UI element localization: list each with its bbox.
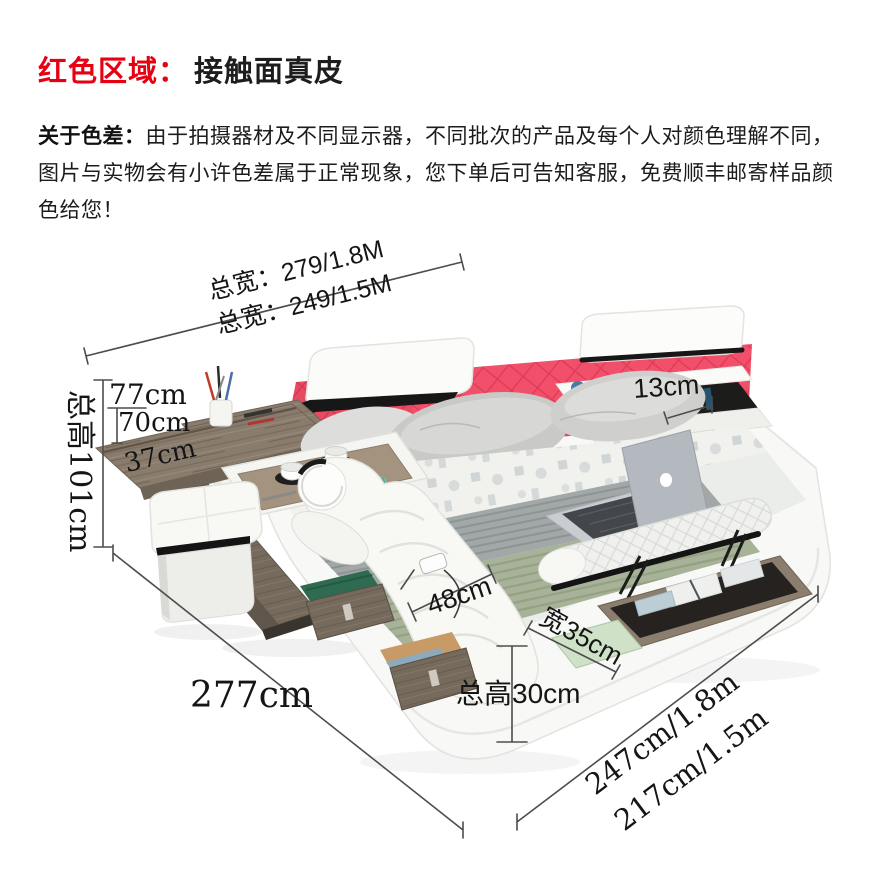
label-overall-height: 总高101cm [62,390,97,553]
label-tray-height: 77cm [109,378,187,411]
label-desk-height: 70cm [118,408,190,438]
laptop-logo [660,473,672,487]
pencil-cup [206,366,232,426]
label-shelf-depth: 13cm [632,369,700,404]
product-dimension-page: 红色区域：接触面真皮 关于色差：由于拍摄器材及不同显示器，不同批次的产品及每个人… [0,0,869,869]
storage-ottoman [150,482,262,623]
label-base-height: 总高30cm [456,678,580,709]
bed-dimension-diagram: 总宽：279/1.8M 总宽：249/1.5M 77cm 70cm 37cm 总… [0,0,869,869]
label-overall-depth: 277cm [190,675,313,716]
